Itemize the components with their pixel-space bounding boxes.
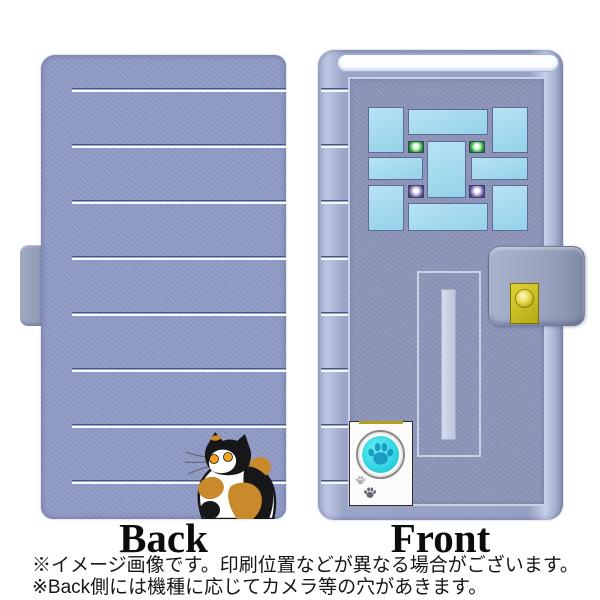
front-label: Front (318, 518, 563, 559)
doorbell-button-icon (515, 289, 534, 308)
disclaimer-notes: ※イメージ画像です。印刷位置などが異なる場合がございます。 ※Back側には機種… (32, 555, 579, 598)
stripe (72, 256, 286, 260)
window-pane (408, 203, 488, 231)
window-pane-center (427, 141, 466, 198)
transom-window (337, 54, 559, 72)
window-light-purple-icon (408, 185, 424, 198)
paw-button (362, 436, 399, 473)
note-line: ※Back側には機種に応じてカメラ等の穴があきます。 (32, 577, 579, 599)
back-cover (41, 55, 286, 519)
back-label: Back (41, 518, 286, 559)
spine-ridges (321, 50, 348, 520)
stripe (72, 144, 286, 148)
window-pane (368, 157, 423, 180)
window-pane (408, 109, 488, 135)
window-pane (368, 107, 404, 153)
doorbell-plate (510, 283, 539, 324)
window-light-green-icon (408, 141, 424, 153)
mail-slot-bar (441, 289, 456, 440)
paw-print-icon (363, 486, 377, 500)
window-pane (492, 185, 528, 231)
cat-eye-left (210, 455, 219, 464)
window-light-green-icon (469, 141, 485, 153)
window-pane (471, 157, 528, 180)
pet-door-hinge (359, 421, 403, 424)
window-light-purple-icon (469, 185, 485, 198)
pet-door (349, 421, 413, 506)
spine-ridge (321, 424, 348, 428)
spine-ridge (321, 144, 348, 148)
mail-slot (417, 271, 481, 457)
cat-eye-right (224, 453, 233, 462)
spine-ridge (321, 88, 348, 92)
doorbell-strap (488, 246, 585, 326)
spine-ridge (321, 200, 348, 204)
window-pane (492, 107, 528, 153)
spine-ridge (321, 368, 348, 372)
stripe (72, 312, 286, 316)
stripe (72, 88, 286, 92)
spine-ridge (321, 312, 348, 316)
calico-cat-illustration (183, 430, 283, 519)
stripe (72, 424, 286, 428)
stripe (72, 200, 286, 204)
stripe (72, 368, 286, 372)
paw-print-icon (355, 475, 366, 486)
note-line: ※イメージ画像です。印刷位置などが異なる場合がございます。 (32, 555, 579, 577)
spine-ridge (321, 256, 348, 260)
window-pane (368, 185, 404, 231)
product-image: Back Front ※イメージ画像です。印刷位置などが異なる場合がございます。… (0, 0, 600, 600)
spine-ridge (321, 480, 348, 484)
paw-icon (366, 440, 395, 469)
paw-button-ring (356, 430, 405, 479)
window-grid (368, 106, 528, 231)
